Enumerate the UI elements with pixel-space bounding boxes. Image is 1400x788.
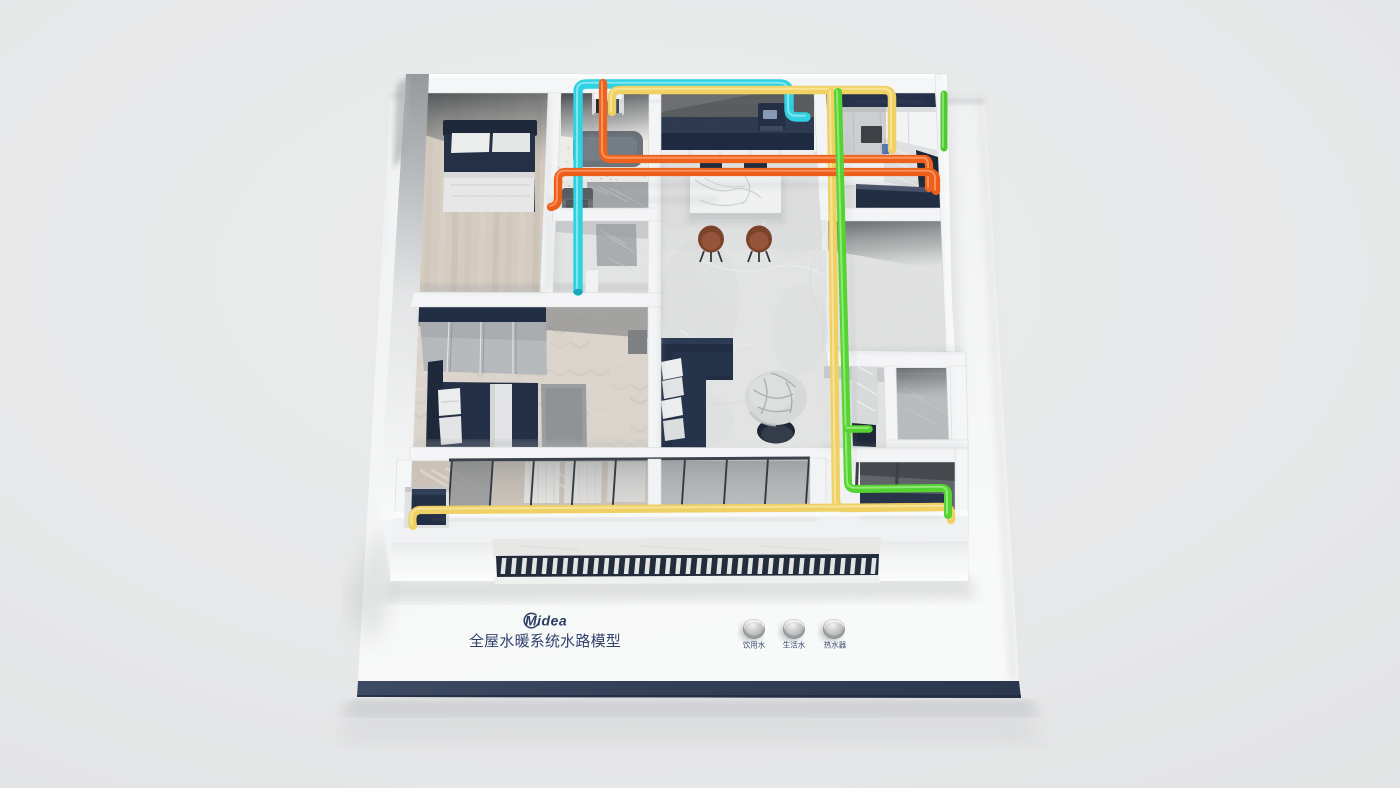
svg-text:Midea: Midea — [525, 613, 567, 629]
svg-text:饮用水: 饮用水 — [743, 640, 766, 650]
svg-text:热水器: 热水器 — [824, 640, 847, 650]
svg-text:全屋水暖系统水路模型: 全屋水暖系统水路模型 — [469, 632, 621, 650]
svg-text:生活水: 生活水 — [783, 640, 806, 650]
